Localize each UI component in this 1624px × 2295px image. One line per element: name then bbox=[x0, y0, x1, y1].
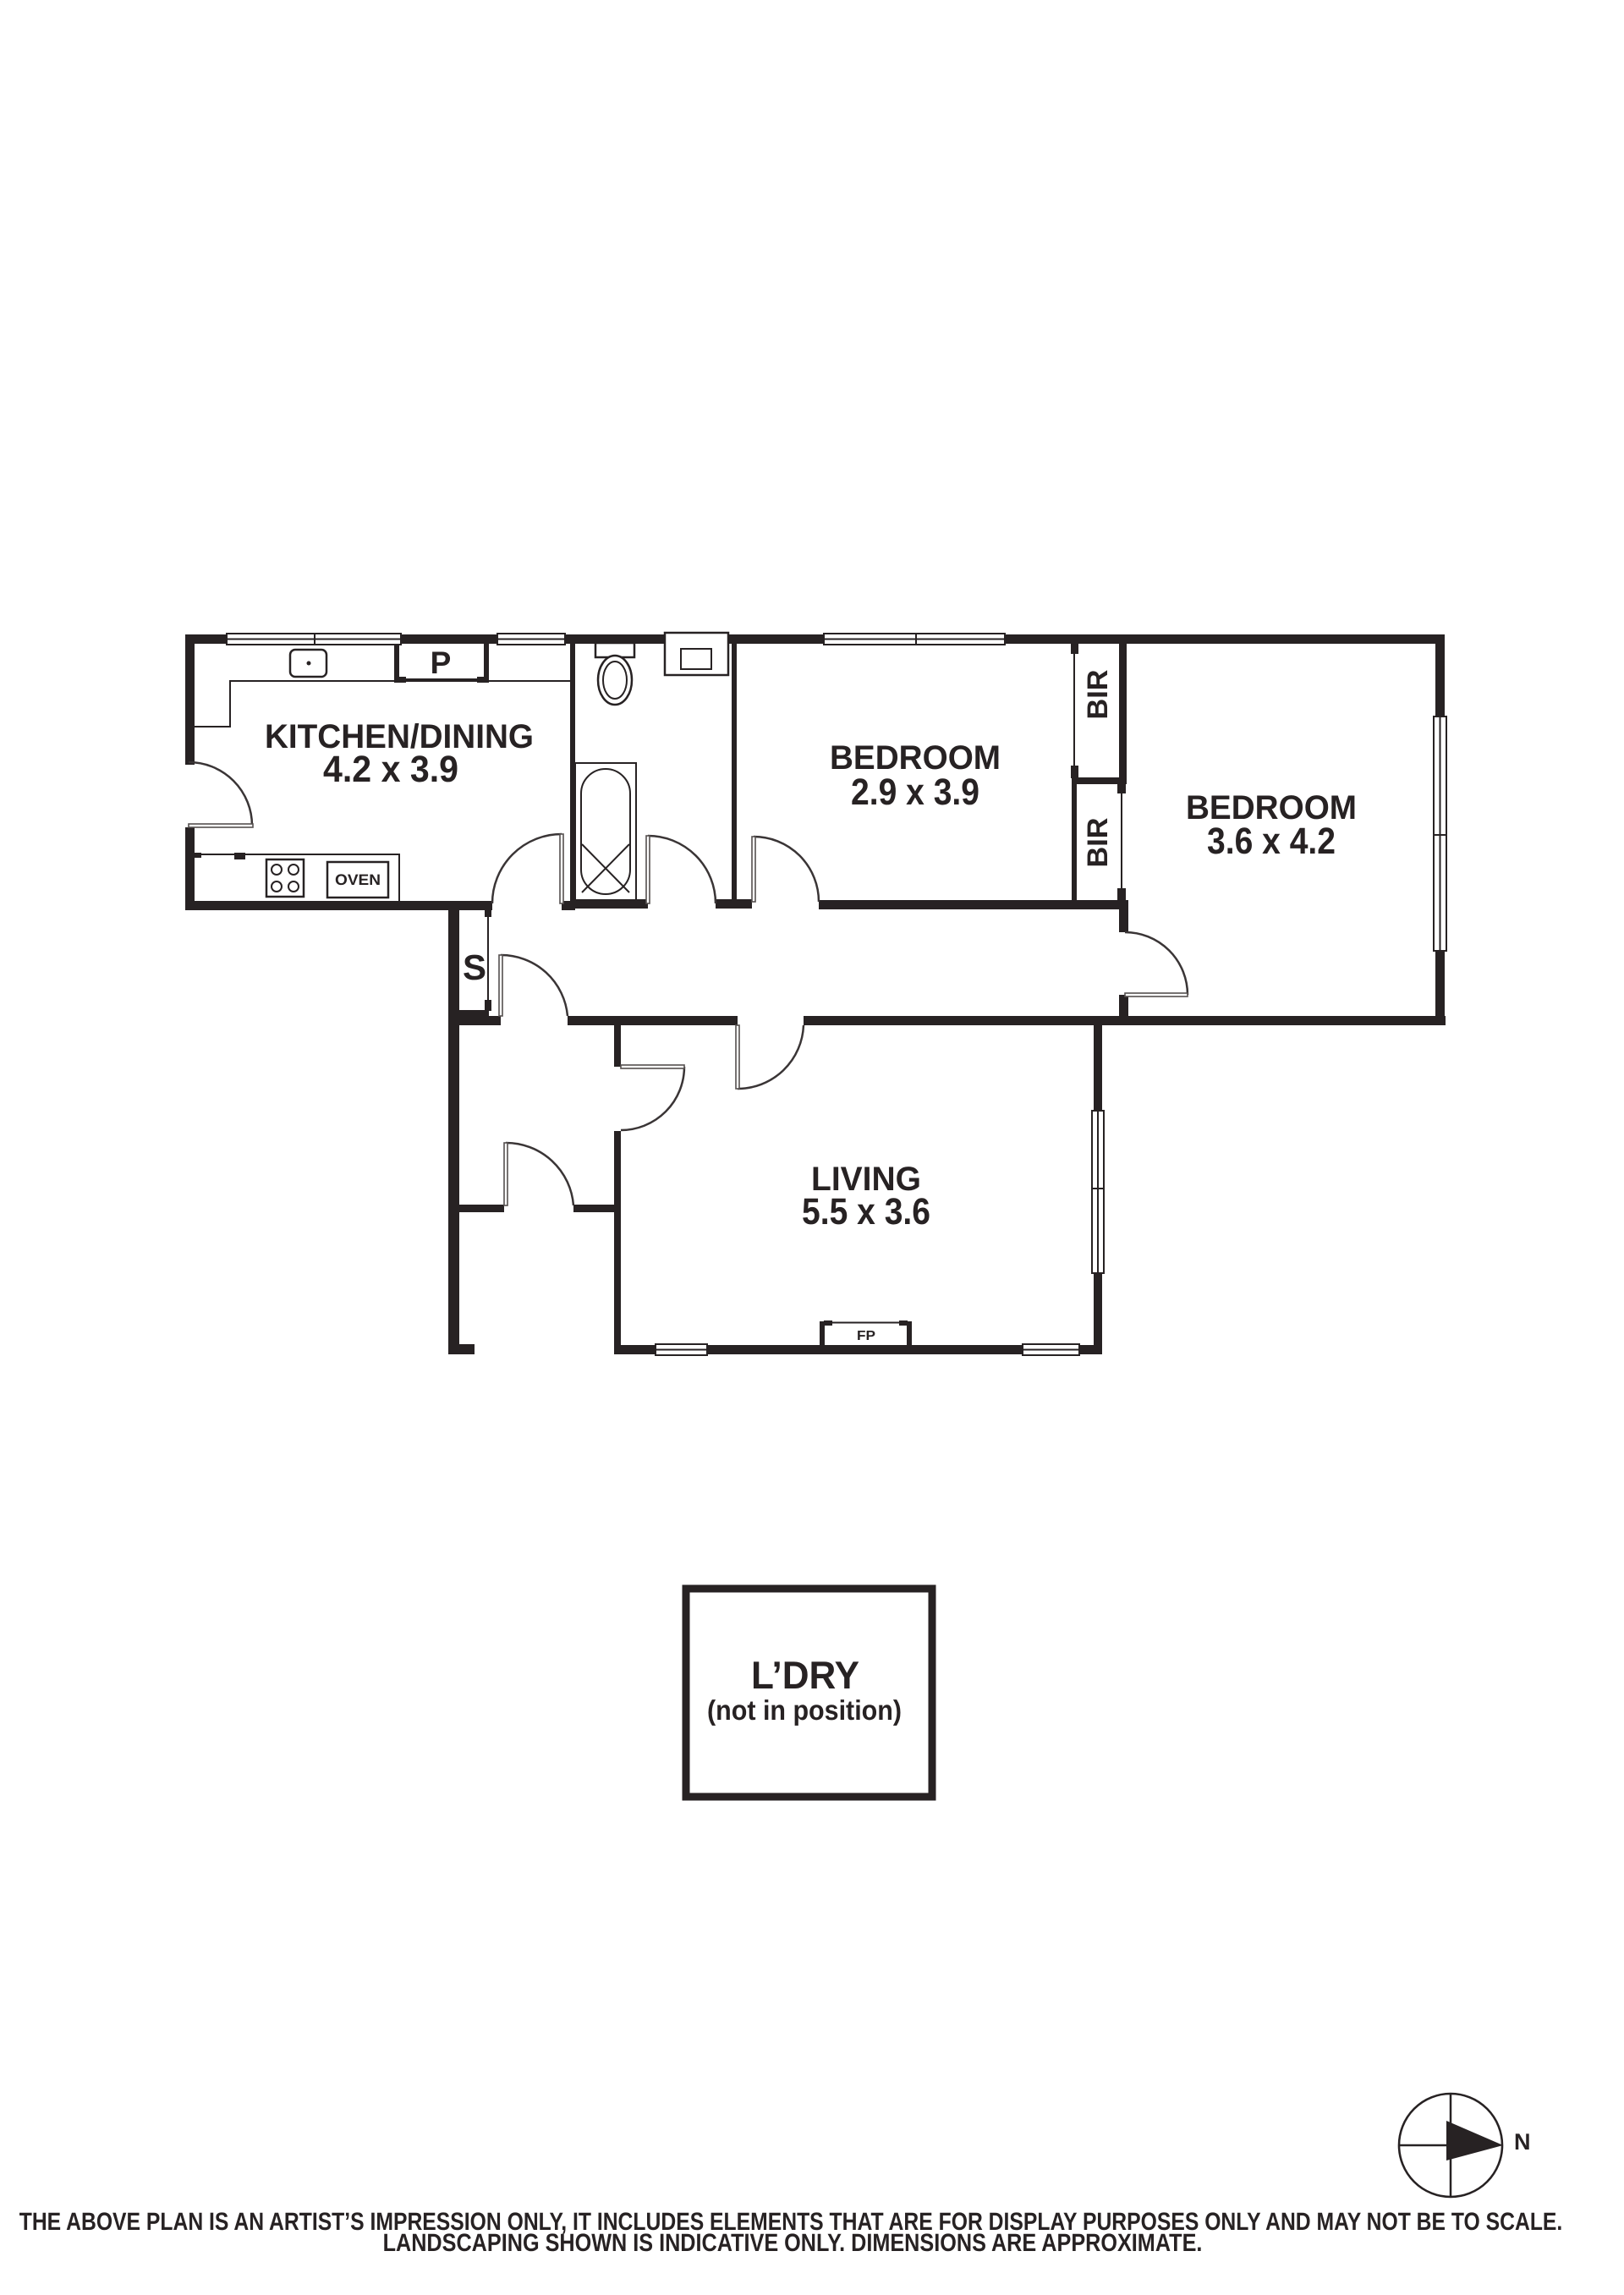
svg-text:S: S bbox=[463, 947, 486, 987]
svg-text:5.5 x 3.6: 5.5 x 3.6 bbox=[802, 1191, 930, 1233]
svg-text:BIR: BIR bbox=[1082, 670, 1114, 720]
svg-text:N: N bbox=[1514, 2129, 1531, 2155]
svg-text:P: P bbox=[431, 645, 452, 680]
svg-text:3.6 x 4.2: 3.6 x 4.2 bbox=[1207, 821, 1336, 862]
svg-text:L’DRY: L’DRY bbox=[751, 1653, 859, 1697]
svg-text:LANDSCAPING SHOWN IS INDICATIV: LANDSCAPING SHOWN IS INDICATIVE ONLY. DI… bbox=[383, 2229, 1203, 2257]
svg-text:OVEN: OVEN bbox=[335, 871, 381, 888]
svg-text:BIR: BIR bbox=[1082, 818, 1114, 868]
svg-text:FP: FP bbox=[857, 1329, 875, 1343]
svg-text:4.2 x 3.9: 4.2 x 3.9 bbox=[323, 749, 458, 790]
svg-text:(not in position): (not in position) bbox=[707, 1694, 902, 1726]
svg-text:2.9 x 3.9: 2.9 x 3.9 bbox=[851, 771, 979, 813]
